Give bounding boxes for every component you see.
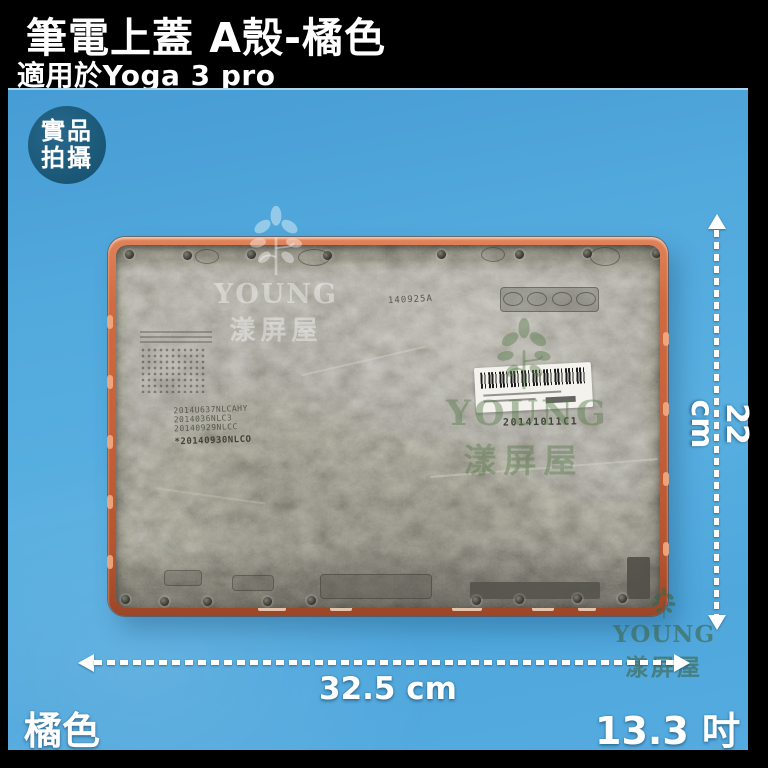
- screw-dot: [618, 594, 627, 603]
- fine-print-lines: [140, 331, 212, 344]
- rim-bump: [663, 402, 669, 416]
- rim-bump: [663, 472, 669, 486]
- hole-outline: [195, 249, 219, 264]
- barcode-sticker: [474, 362, 593, 413]
- screw-dot: [515, 595, 524, 604]
- badge-line1: 實品: [41, 118, 93, 145]
- screw-dot: [263, 597, 272, 606]
- bottom-step: [232, 575, 274, 591]
- screw-dot: [247, 250, 256, 259]
- sticker-text-line: [546, 396, 576, 404]
- rim-bump: [107, 495, 113, 509]
- hinge-recess: [500, 287, 599, 312]
- screw-dot: [437, 250, 446, 259]
- recess-knob: [576, 292, 596, 306]
- cover-interior: 2014U637NLCAHY 2014036NLC3 20140929NLCC …: [116, 245, 660, 608]
- screw-dot: [515, 250, 524, 259]
- stamp-line: 20140929NLCC: [174, 422, 251, 434]
- screw-dot: [573, 594, 582, 603]
- rim-bump: [663, 332, 669, 346]
- barcode-stripes: [480, 367, 586, 388]
- arrow-down-icon: [708, 615, 726, 630]
- screw-dot: [125, 250, 134, 259]
- bottom-recess: [320, 574, 432, 599]
- color-label: 橘色: [24, 700, 100, 755]
- rim-bump: [107, 315, 113, 329]
- recess-knob: [503, 292, 523, 306]
- screw-dot: [472, 596, 481, 605]
- stamp-code-block: 2014U637NLCAHY 2014036NLC3 20140929NLCC …: [173, 404, 251, 448]
- arrow-left-icon: [78, 654, 94, 672]
- horizontal-dimension-line: [94, 660, 674, 665]
- screw-dot: [160, 597, 169, 606]
- actual-photo-badge: 實品 拍攝: [28, 106, 106, 184]
- arrow-up-icon: [708, 214, 726, 229]
- screen-size-label: 13.3 吋: [595, 700, 740, 755]
- screw-dot: [307, 596, 316, 605]
- hole-outline: [298, 249, 330, 266]
- screw-dot: [183, 251, 192, 260]
- rim-bump: [107, 555, 113, 569]
- watermark-brand-cn: 漾屏屋: [608, 648, 720, 682]
- watermark-brand: YOUNG: [608, 621, 720, 648]
- width-dimension-label: 32.5 cm: [278, 671, 498, 707]
- product-listing-image: 筆電上蓋 A殼-橘色 適用於Yoga 3 pro 實品 拍攝: [0, 0, 768, 768]
- perforated-block: [140, 347, 206, 393]
- qc-code: 20141011C1: [503, 416, 578, 428]
- hole-outline: [481, 247, 505, 262]
- height-dimension-label: 22 cm: [720, 374, 754, 474]
- rim-bump: [107, 435, 113, 449]
- badge-line2: 拍攝: [41, 145, 93, 172]
- hole-outline: [590, 247, 620, 266]
- hinge-dark-block: [627, 557, 650, 599]
- rim-bump: [107, 375, 113, 389]
- arrow-right-icon: [674, 654, 690, 672]
- recess-knob: [552, 292, 572, 306]
- recess-knob: [527, 292, 547, 306]
- sticker-text-line: [484, 398, 536, 403]
- screw-dot: [203, 597, 212, 606]
- rim-bump: [663, 542, 669, 556]
- laptop-cover: 2014U637NLCAHY 2014036NLC3 20140929NLCC …: [108, 237, 668, 616]
- screw-dot: [652, 249, 660, 258]
- screw-dot: [121, 595, 130, 604]
- bottom-step: [164, 570, 202, 586]
- photo-area: 實品 拍攝: [8, 88, 748, 750]
- sticker-text-line: [483, 391, 561, 397]
